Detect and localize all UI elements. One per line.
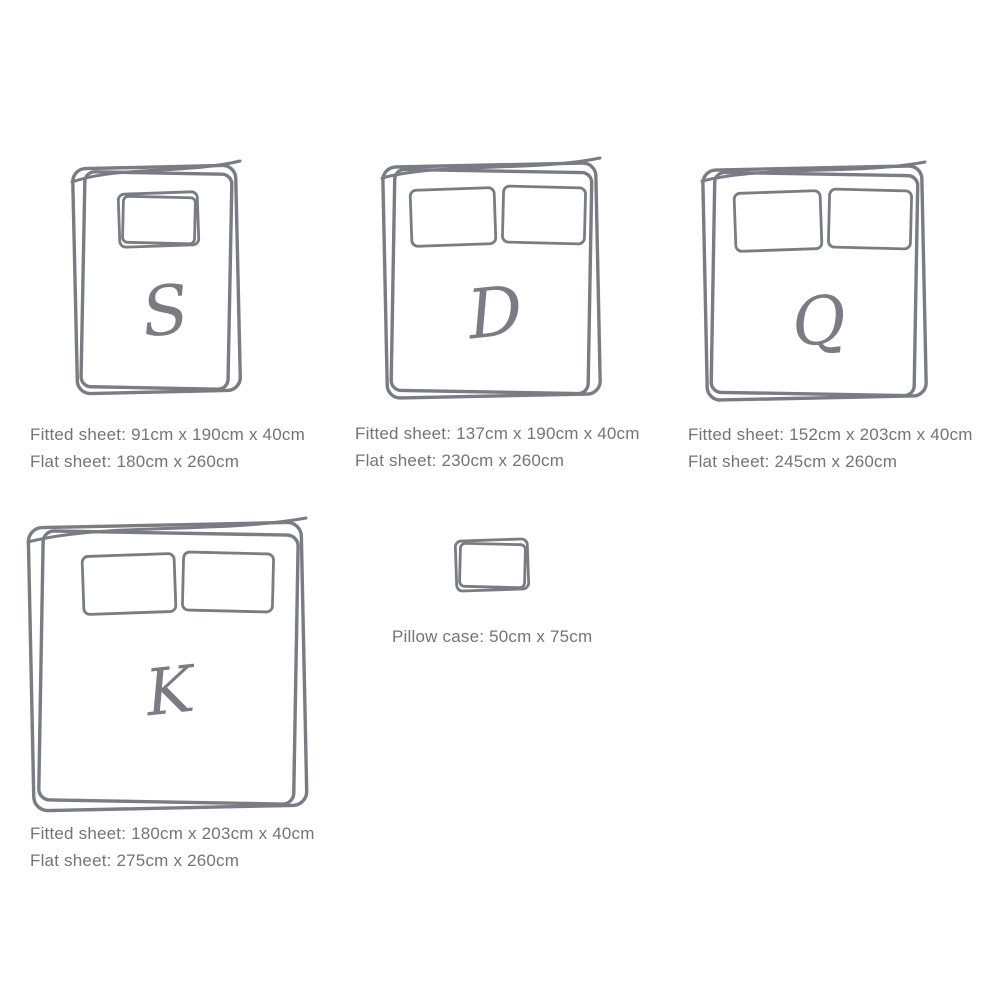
pillow-shape (734, 191, 822, 252)
pillow-case-caption: Pillow case: 50cm x 75cm (392, 623, 592, 650)
king-caption: Fitted sheet: 180cm x 203cm x 40cm Flat … (30, 820, 315, 874)
pillow-shape (182, 552, 273, 612)
bed-letter-double: D (462, 271, 526, 355)
double-caption: Fitted sheet: 137cm x 190cm x 40cm Flat … (355, 420, 640, 474)
pillow-shape (459, 543, 525, 588)
flat-sheet-line: Flat sheet: 180cm x 260cm (30, 448, 305, 475)
double-bed-sketch: D (372, 150, 612, 408)
bedding-size-chart: S Fitted sheet: 91cm x 190cm x 40cm Flat… (0, 0, 1000, 1000)
king-bed-sketch: K (18, 508, 318, 820)
pillow-shape (828, 189, 911, 249)
pillow-case-line: Pillow case: 50cm x 75cm (392, 623, 592, 650)
king-bed-figure: K (18, 508, 318, 820)
fitted-sheet-line: Fitted sheet: 137cm x 190cm x 40cm (355, 420, 640, 447)
queen-bed-sketch: Q (692, 155, 937, 410)
pillow-shape (455, 539, 529, 591)
flat-sheet-line: Flat sheet: 230cm x 260cm (355, 447, 640, 474)
flat-sheet-line: Flat sheet: 275cm x 260cm (30, 847, 315, 874)
single-bed-sketch: S (62, 152, 252, 404)
flat-sheet-line: Flat sheet: 245cm x 260cm (688, 448, 973, 475)
pillow-shape (82, 553, 176, 614)
queen-bed-figure: Q (692, 155, 937, 410)
bed-letter-king: K (141, 652, 200, 731)
pillow-shape (122, 196, 195, 244)
single-caption: Fitted sheet: 91cm x 190cm x 40cm Flat s… (30, 421, 305, 475)
single-bed-figure: S (62, 152, 252, 404)
pillow-shape (502, 186, 585, 244)
fitted-sheet-line: Fitted sheet: 180cm x 203cm x 40cm (30, 820, 315, 847)
queen-caption: Fitted sheet: 152cm x 203cm x 40cm Flat … (688, 421, 973, 475)
pillow-case-sketch (446, 530, 538, 600)
pillow-shape (118, 192, 199, 248)
bed-letter-single: S (138, 270, 193, 353)
pillow-case-figure (446, 530, 538, 600)
fitted-sheet-line: Fitted sheet: 91cm x 190cm x 40cm (30, 421, 305, 448)
bed-letter-queen: Q (788, 280, 850, 362)
fitted-sheet-line: Fitted sheet: 152cm x 203cm x 40cm (688, 421, 973, 448)
double-bed-figure: D (372, 150, 612, 408)
pillow-shape (410, 188, 496, 247)
